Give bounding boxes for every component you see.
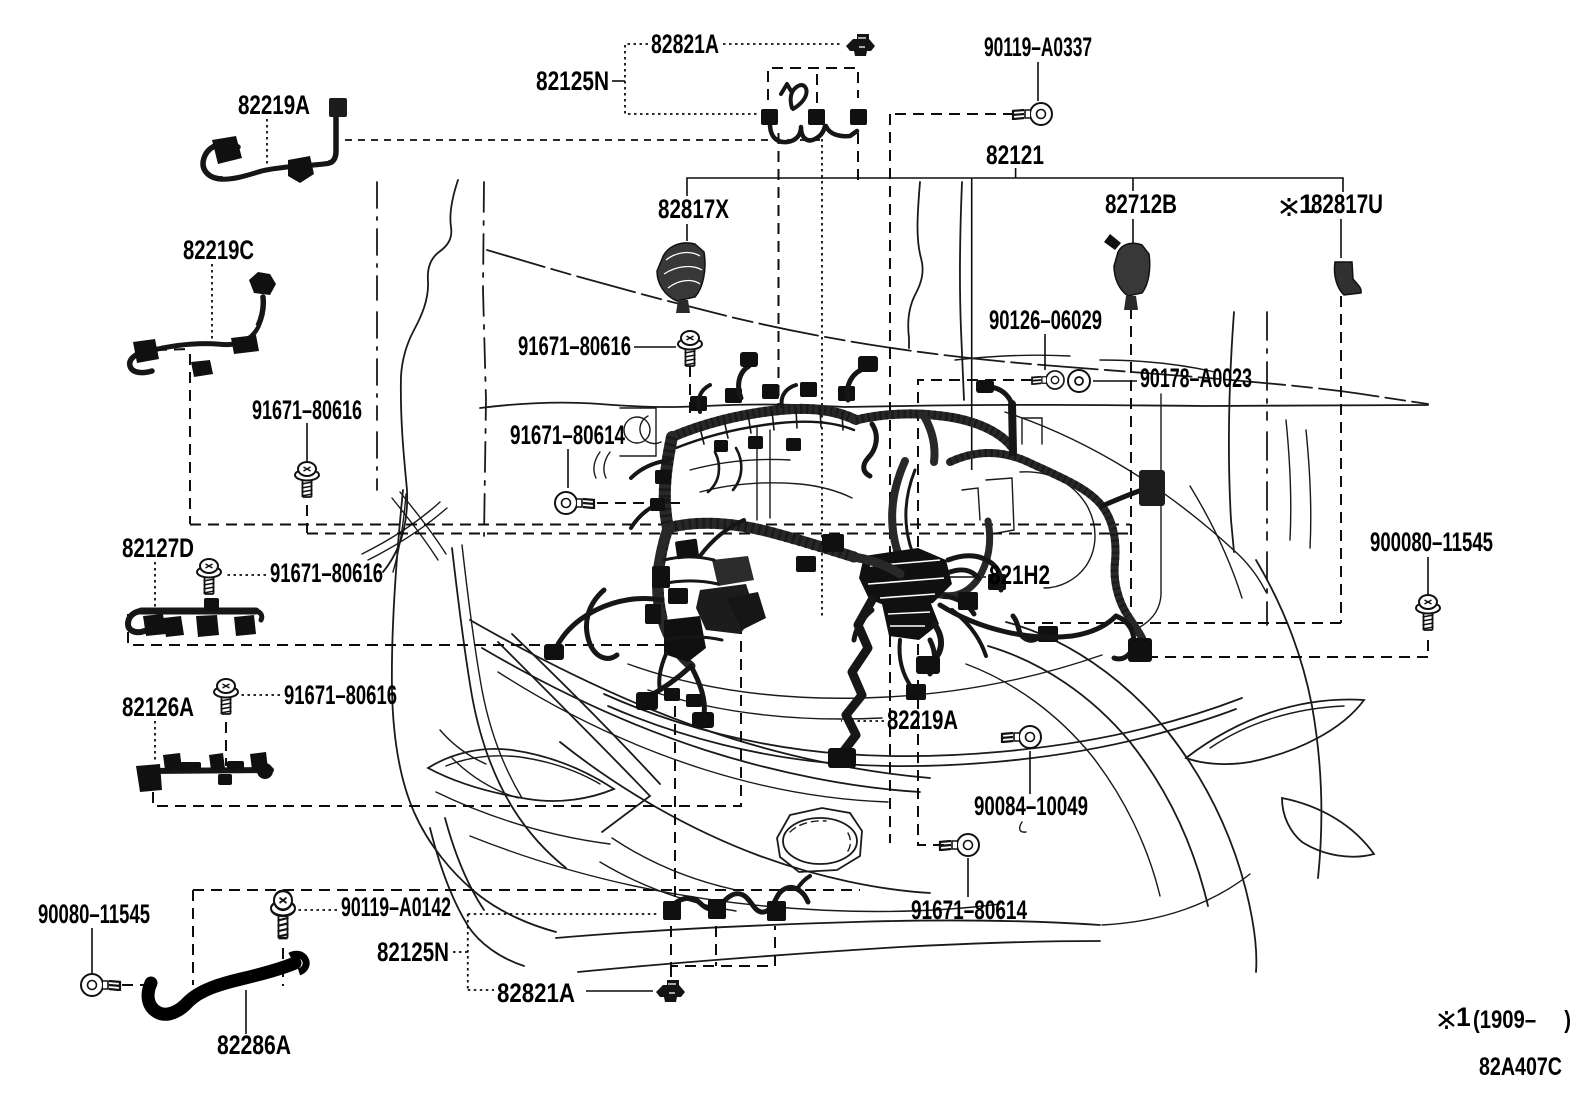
svg-text:90126–06029: 90126–06029 (989, 305, 1102, 335)
svg-text:900080–11545: 900080–11545 (1370, 527, 1493, 557)
svg-text:82817X: 82817X (658, 194, 729, 224)
svg-text:90119–A0337: 90119–A0337 (984, 32, 1092, 62)
svg-text:90178–A0023: 90178–A0023 (1140, 363, 1252, 393)
svg-text:82219C: 82219C (183, 235, 254, 265)
svg-text:90084–10049: 90084–10049 (974, 791, 1088, 821)
svg-text:821H2: 821H2 (989, 560, 1050, 590)
svg-text:82127D: 82127D (122, 533, 194, 563)
svg-text:90080–11545: 90080–11545 (38, 899, 150, 929)
svg-text:(1909– ): (1909– ) (1473, 1006, 1571, 1034)
svg-text:91671–80616: 91671–80616 (270, 558, 383, 588)
svg-text:91671–80614: 91671–80614 (911, 895, 1027, 925)
svg-text:82126A: 82126A (122, 692, 194, 722)
svg-text:82821A: 82821A (497, 978, 575, 1008)
svg-text:1: 1 (1456, 1002, 1471, 1032)
svg-text:82121: 82121 (986, 140, 1044, 170)
svg-text:82712B: 82712B (1105, 189, 1177, 219)
svg-text:82821A: 82821A (651, 29, 719, 59)
svg-text:82219A: 82219A (887, 705, 958, 735)
svg-text:91671–80614: 91671–80614 (510, 420, 625, 450)
svg-text:82125N: 82125N (536, 66, 609, 96)
svg-text:91671–80616: 91671–80616 (518, 331, 631, 361)
svg-text:91671–80616: 91671–80616 (284, 680, 397, 710)
svg-text:82286A: 82286A (217, 1030, 291, 1060)
svg-text:91671–80616: 91671–80616 (252, 395, 362, 425)
svg-text:82A407C: 82A407C (1479, 1053, 1562, 1081)
svg-text:82125N: 82125N (377, 937, 449, 967)
svg-text:82219A: 82219A (238, 90, 310, 120)
svg-text:82817U: 82817U (1311, 189, 1383, 219)
svg-text:90119–A0142: 90119–A0142 (341, 892, 451, 922)
